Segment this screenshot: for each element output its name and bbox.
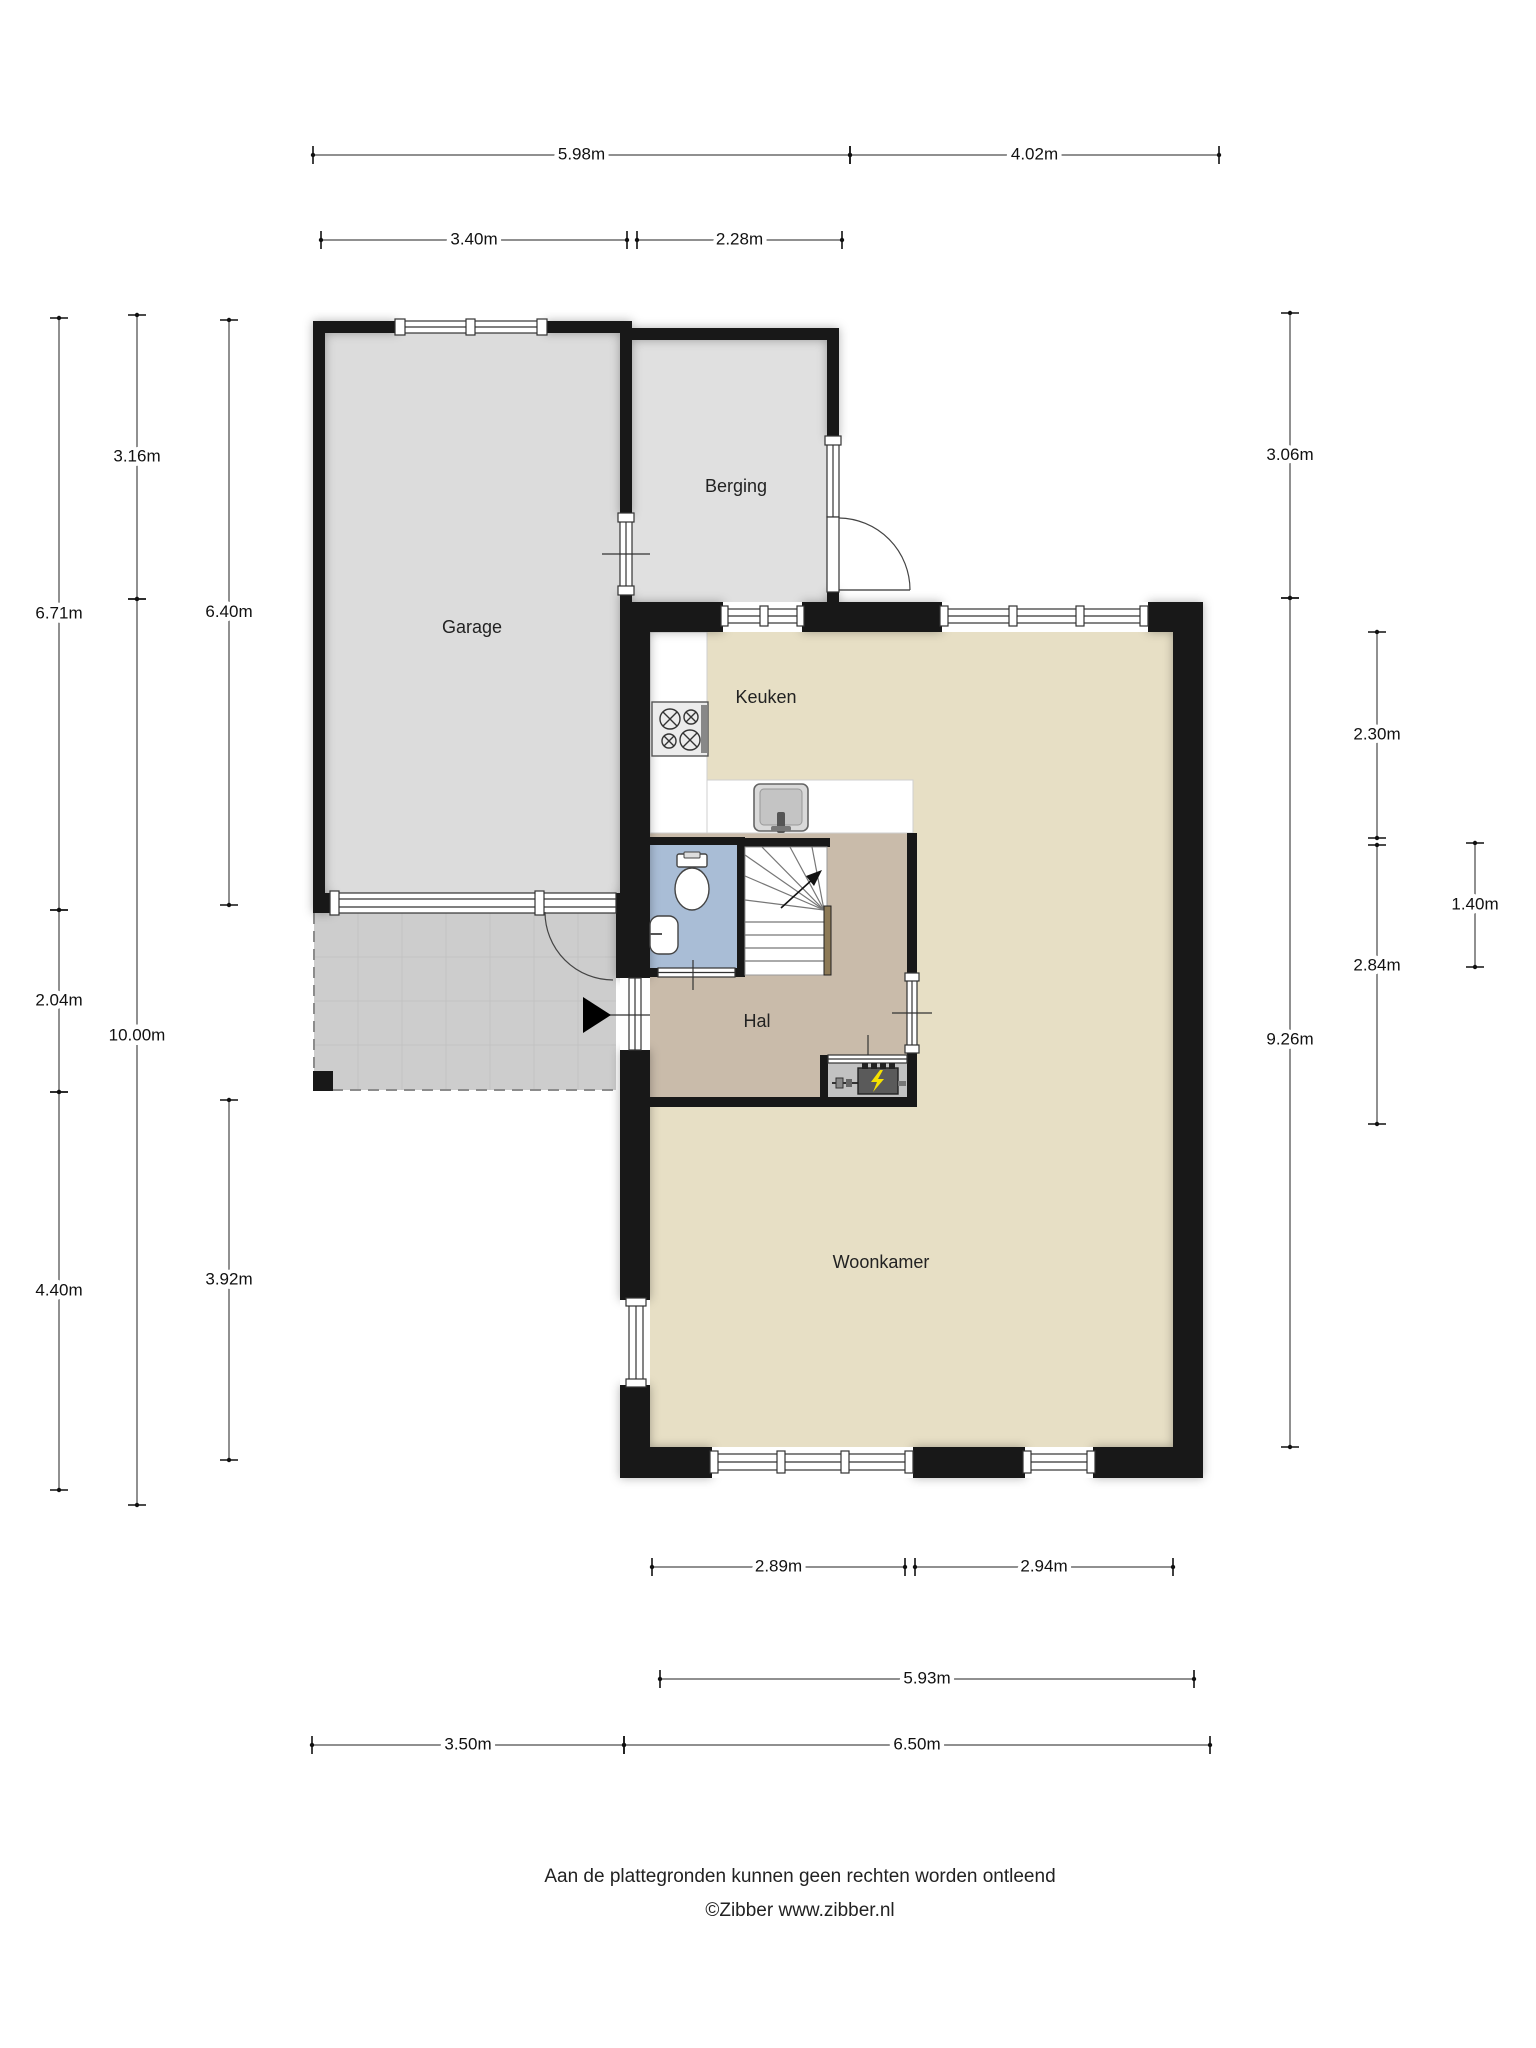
garage-berging-wall-b xyxy=(620,593,632,913)
dimension-label: 2.04m xyxy=(35,990,82,1009)
dimension-label: 2.28m xyxy=(716,229,763,248)
berging-wall-top xyxy=(632,328,839,340)
meterkast-wall-left xyxy=(820,1055,828,1097)
footer: Aan de plattegronden kunnen geen rechten… xyxy=(544,1866,1055,1921)
dimension-label: 3.50m xyxy=(444,1734,491,1753)
main-wall-bottom-b xyxy=(913,1447,1025,1478)
footer-disclaimer: Aan de plattegronden kunnen geen rechten… xyxy=(544,1866,1055,1887)
toilet-wall-bottom-a xyxy=(650,968,658,977)
dimension-label: 9.26m xyxy=(1266,1029,1313,1048)
toilet-wall-top xyxy=(650,837,745,845)
dimension-label: 4.40m xyxy=(35,1280,82,1299)
garage-wall-left xyxy=(313,321,325,913)
toilet-wall-bottom-b xyxy=(735,968,745,977)
garage-berging-wall-a xyxy=(620,333,632,515)
dimension-label: 10.00m xyxy=(109,1025,166,1044)
stairs-handrail xyxy=(824,906,831,975)
kitchen-window-left xyxy=(721,602,804,632)
dimension-label: 6.50m xyxy=(893,1734,940,1753)
berging-door xyxy=(827,517,910,592)
main-wall-left-kitchen xyxy=(632,602,650,913)
berging-floor xyxy=(632,340,827,602)
dimension-label: 6.40m xyxy=(205,602,252,621)
livingroom-window-bottom-left xyxy=(710,1447,913,1478)
garage-wall-top-a xyxy=(313,321,397,333)
main-wall-bottom-c xyxy=(1093,1447,1203,1478)
garage-floor xyxy=(325,333,620,893)
livingroom-window-left xyxy=(620,1298,650,1387)
main-wall-right xyxy=(1173,602,1203,1478)
footer-copyright: ©Zibber www.zibber.nl xyxy=(705,1900,894,1921)
patio xyxy=(313,913,616,1091)
counter-sink-run xyxy=(707,780,913,833)
berging-wall-right-a xyxy=(827,328,839,438)
main-wall-left-entry-c xyxy=(620,1385,650,1447)
stairs-wall-top xyxy=(745,838,830,847)
floorplan-page: GarageBergingKeukenHalWoonkamer 5.98m4.0… xyxy=(0,0,1536,2048)
kitchen-window-top xyxy=(940,602,1148,632)
dimension-label: 6.71m xyxy=(35,603,82,622)
stove-icon xyxy=(652,702,708,756)
hal-wall-right-a xyxy=(907,833,917,975)
dimension-label: 2.89m xyxy=(755,1556,802,1575)
toilet-wall-right xyxy=(737,837,745,977)
berging-window xyxy=(825,436,841,517)
dimension-label: 2.84m xyxy=(1353,955,1400,974)
main-wall-left-entry-b xyxy=(620,1050,650,1300)
room-label-hal: Hal xyxy=(743,1011,770,1031)
floorplan-canvas: GarageBergingKeukenHalWoonkamer 5.98m4.0… xyxy=(0,0,1536,2048)
room-label-berging: Berging xyxy=(705,476,767,496)
dimension-label: 2.30m xyxy=(1353,724,1400,743)
dimension-label: 5.98m xyxy=(558,144,605,163)
room-label-woonkamer: Woonkamer xyxy=(833,1252,930,1272)
dimension-label: 3.40m xyxy=(450,229,497,248)
room-label-keuken: Keuken xyxy=(735,687,796,707)
dimension-label: 1.40m xyxy=(1451,894,1498,913)
dimension-label: 3.16m xyxy=(113,446,160,465)
garage-wall-top-b xyxy=(545,321,632,333)
stairs-icon xyxy=(745,847,831,975)
patio-corner-post xyxy=(313,1071,333,1091)
dimension-label: 4.02m xyxy=(1011,144,1058,163)
dimension-label: 2.94m xyxy=(1020,1556,1067,1575)
garage-top-window xyxy=(395,319,547,335)
main-wall-left-entry-a xyxy=(616,893,650,978)
dimension-label: 3.92m xyxy=(205,1269,252,1288)
handbasin-icon xyxy=(650,916,678,954)
toilet-icon xyxy=(675,852,709,910)
sink-icon xyxy=(754,784,808,833)
livingroom-window-bottom-right xyxy=(1023,1447,1095,1478)
main-wall-bottom-a xyxy=(620,1447,712,1478)
dimension-label: 5.93m xyxy=(903,1668,950,1687)
dimension-label: 3.06m xyxy=(1266,445,1313,464)
main-wall-top-b xyxy=(802,602,942,632)
room-label-garage: Garage xyxy=(442,617,502,637)
hal-wall-bottom xyxy=(650,1097,917,1107)
